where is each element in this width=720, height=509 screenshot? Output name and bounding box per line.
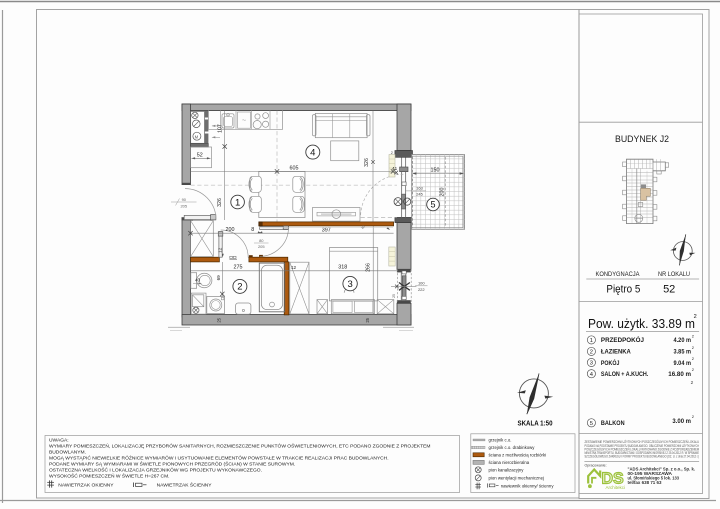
svg-text:ŁAZIENKA: ŁAZIENKA: [601, 349, 631, 356]
svg-text:12: 12: [291, 265, 297, 270]
svg-text:12: 12: [217, 247, 222, 253]
svg-text:PRZEDPOKÓJ: PRZEDPOKÓJ: [601, 335, 644, 344]
svg-text:5: 5: [590, 421, 593, 427]
svg-text:266: 266: [366, 263, 372, 272]
svg-text:BALKON: BALKON: [601, 420, 625, 427]
svg-text:5: 5: [430, 200, 435, 210]
svg-text:40: 40: [195, 278, 201, 283]
svg-text:Architekci: Architekci: [606, 485, 626, 491]
svg-text:90: 90: [182, 197, 187, 202]
svg-text:BUDOWLANYM.: BUDOWLANYM.: [49, 450, 86, 456]
svg-text:326: 326: [217, 198, 223, 207]
svg-text:grzejnik c.o.: grzejnik c.o.: [489, 438, 512, 443]
svg-text:25: 25: [216, 317, 221, 322]
svg-text:pion kanalizacyjny: pion kanalizacyjny: [489, 468, 525, 473]
svg-text:BUDYNEK J2: BUDYNEK J2: [615, 134, 669, 144]
svg-text:NR LOKALU: NR LOKALU: [658, 272, 690, 278]
svg-text:4: 4: [310, 147, 315, 158]
svg-text:KONDYGNACJA: KONDYGNACJA: [596, 272, 640, 278]
svg-text:107: 107: [218, 124, 224, 133]
svg-text:205: 205: [258, 244, 265, 249]
svg-text:Opracowanie:: Opracowanie:: [585, 464, 607, 468]
svg-text:41: 41: [392, 166, 398, 171]
svg-text:2: 2: [237, 282, 242, 293]
svg-text:2: 2: [590, 350, 593, 356]
svg-text:200: 200: [226, 227, 235, 233]
svg-text:16.80 m: 16.80 m: [668, 371, 691, 378]
svg-text:52: 52: [663, 283, 675, 295]
svg-text:1: 1: [235, 197, 240, 208]
svg-text:200: 200: [440, 188, 446, 197]
svg-text:SZCZEGÓŁOWEGO ZAKRESU I FORMY: SZCZEGÓŁOWEGO ZAKRESU I FORMY PROJEKTU B…: [585, 453, 700, 458]
svg-text:1: 1: [590, 338, 593, 344]
svg-text:275: 275: [234, 265, 243, 271]
svg-text:8: 8: [251, 227, 254, 233]
svg-text:245: 245: [416, 191, 423, 196]
svg-text:3.00 m: 3.00 m: [672, 418, 691, 425]
svg-text:326: 326: [364, 158, 370, 167]
svg-text:SALON + A.KUCH.: SALON + A.KUCH.: [601, 371, 649, 378]
svg-text:150: 150: [431, 167, 440, 173]
svg-text:2: 2: [694, 314, 697, 320]
svg-text:POKÓJ: POKÓJ: [601, 358, 620, 367]
svg-text:80: 80: [259, 238, 264, 243]
svg-text:grzejnik c.o. drabinkowy: grzejnik c.o. drabinkowy: [489, 445, 536, 450]
svg-text:25: 25: [365, 317, 370, 322]
svg-text:222: 222: [418, 287, 425, 292]
svg-text:25: 25: [392, 294, 396, 298]
svg-text:9.04 m: 9.04 m: [674, 360, 692, 367]
svg-text:2: 2: [691, 380, 694, 385]
svg-text:SKALA 1:50: SKALA 1:50: [518, 419, 553, 428]
svg-text:tel/fax 638 71 63: tel/fax 638 71 63: [628, 480, 663, 485]
svg-text:pion wentylacji mechanicznej: pion wentylacji mechanicznej: [489, 475, 544, 480]
svg-text:Pow. użytk. 33.89 m: Pow. użytk. 33.89 m: [588, 317, 695, 331]
svg-text:ściana z możliwością rozbiórki: ściana z możliwością rozbiórki: [489, 453, 547, 458]
svg-text:397: 397: [322, 227, 331, 233]
svg-text:nawiewnik okienny/ ścienny: nawiewnik okienny/ ścienny: [501, 483, 555, 488]
svg-text:3.85 m: 3.85 m: [674, 349, 692, 356]
svg-text:MOGĄ WYSTĄPIĆ NIEWIELKIE RÓŻNI: MOGĄ WYSTĄPIĆ NIEWIELKIE RÓŻNICE WYMIARÓ…: [49, 455, 389, 462]
svg-text:69: 69: [216, 275, 221, 281]
svg-text:M: M: [195, 134, 199, 139]
svg-text:3: 3: [590, 361, 593, 367]
svg-text:52: 52: [197, 152, 203, 158]
svg-text:4.20 m: 4.20 m: [674, 337, 692, 344]
svg-text:Piętro 5: Piętro 5: [606, 284, 640, 296]
svg-text:100: 100: [418, 281, 425, 286]
svg-text:318: 318: [338, 265, 347, 271]
svg-text:UWAGA:: UWAGA:: [49, 438, 69, 444]
svg-text:605: 605: [290, 165, 299, 171]
svg-text:163: 163: [416, 186, 423, 191]
svg-text:ściana nierozbieralna: ściana nierozbieralna: [489, 460, 530, 465]
svg-text:NAWIETRZAK OKIENNY: NAWIETRZAK OKIENNY: [58, 482, 114, 488]
svg-text:2: 2: [391, 151, 393, 155]
svg-text:205: 205: [180, 203, 187, 208]
svg-text:3: 3: [347, 279, 352, 290]
svg-text:~: ~: [242, 118, 246, 125]
